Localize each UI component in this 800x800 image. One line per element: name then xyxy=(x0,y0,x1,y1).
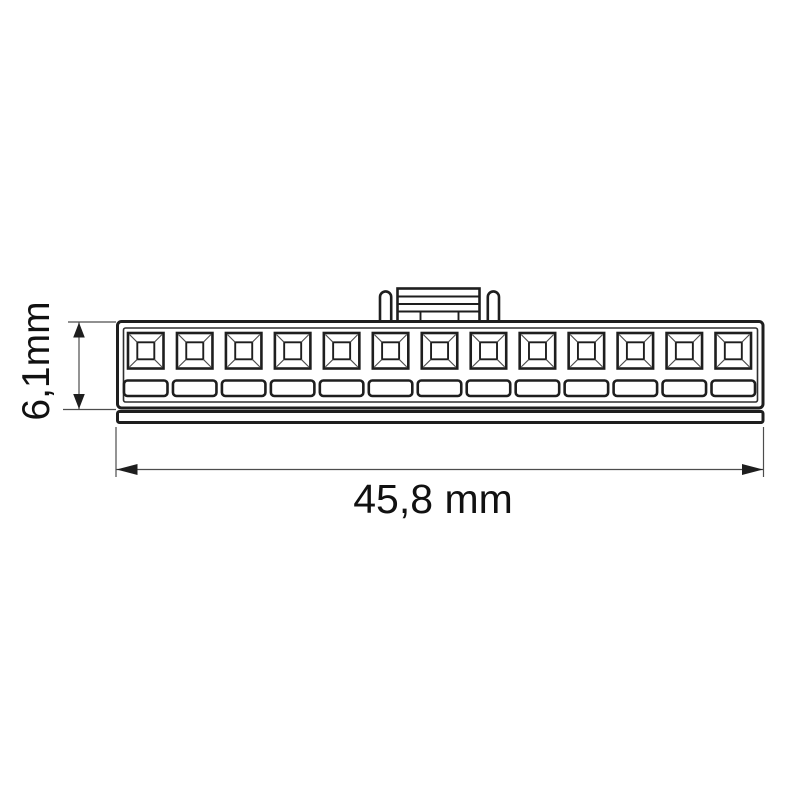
height-dimension: 6,1mm xyxy=(15,301,116,420)
cavity-bevel-line xyxy=(472,359,480,367)
pin-slot xyxy=(712,381,756,397)
width-dimension-label: 45,8 mm xyxy=(353,476,513,522)
cavity-inner-square xyxy=(235,342,252,359)
cavity-bevel-line xyxy=(521,359,529,367)
pin-slot xyxy=(173,381,217,397)
cavity-inner-square xyxy=(627,342,644,359)
pin-cavity-11 xyxy=(614,333,658,396)
cavity-inner-square xyxy=(431,342,448,359)
cavity-bevel-line xyxy=(154,335,162,343)
connector-technical-drawing: 6,1mm 45,8 mm xyxy=(0,0,800,800)
cavity-inner-square xyxy=(382,342,399,359)
cavity-inner-square xyxy=(578,342,595,359)
pin-slot xyxy=(516,381,560,397)
cavity-bevel-line xyxy=(276,359,284,367)
latch-block xyxy=(398,289,480,322)
cavity-bevel-line xyxy=(374,335,382,343)
arrow-left-icon xyxy=(117,464,138,475)
cavity-bevel-line xyxy=(644,359,652,367)
cavity-bevel-line xyxy=(619,359,627,367)
cavity-bevel-line xyxy=(252,335,260,343)
locking-latch xyxy=(380,289,499,323)
cavity-bevel-line xyxy=(301,335,309,343)
cavity-bevel-line xyxy=(179,359,187,367)
cavity-bevel-line xyxy=(350,359,358,367)
pin-slot xyxy=(565,381,609,397)
cavity-inner-square xyxy=(333,342,350,359)
cavity-inner-square xyxy=(480,342,497,359)
cavity-inner-square xyxy=(529,342,546,359)
arrow-right-icon xyxy=(742,464,763,475)
pin-slot xyxy=(271,381,315,397)
cavity-bevel-line xyxy=(350,335,358,343)
cavity-bevel-line xyxy=(717,335,725,343)
cavity-inner-square xyxy=(725,342,742,359)
cavity-bevel-line xyxy=(252,359,260,367)
cavity-bevel-line xyxy=(472,335,480,343)
cavity-bevel-line xyxy=(374,359,382,367)
pin-cavity-5 xyxy=(320,333,364,396)
pin-slot xyxy=(663,381,707,397)
cavity-bevel-line xyxy=(717,359,725,367)
body-base-rail xyxy=(118,412,764,423)
cavity-bevel-line xyxy=(154,359,162,367)
cavity-bevel-line xyxy=(595,335,603,343)
cavity-bevel-line xyxy=(521,335,529,343)
cavity-inner-square xyxy=(137,342,154,359)
cavity-bevel-line xyxy=(203,359,211,367)
cavity-bevel-line xyxy=(668,359,676,367)
cavity-bevel-line xyxy=(668,335,676,343)
cavity-bevel-line xyxy=(644,335,652,343)
cavity-bevel-line xyxy=(619,335,627,343)
cavity-bevel-line xyxy=(693,335,701,343)
pin-slot xyxy=(467,381,511,397)
cavity-bevel-line xyxy=(228,359,236,367)
pin-cavity-12 xyxy=(663,333,707,396)
pin-slot xyxy=(418,381,462,397)
cavity-bevel-line xyxy=(399,359,407,367)
cavity-bevel-line xyxy=(130,359,138,367)
cavity-bevel-line xyxy=(742,335,750,343)
pin-slot xyxy=(369,381,413,397)
arrow-down-icon xyxy=(73,394,85,409)
cavity-bevel-line xyxy=(399,335,407,343)
pin-cavity-row xyxy=(124,333,755,396)
cavity-bevel-line xyxy=(179,335,187,343)
cavity-inner-square xyxy=(676,342,693,359)
cavity-bevel-line xyxy=(546,335,554,343)
pin-cavity-13 xyxy=(712,333,756,396)
pin-slot xyxy=(320,381,364,397)
arrow-up-icon xyxy=(73,323,85,338)
cavity-bevel-line xyxy=(325,335,333,343)
cavity-bevel-line xyxy=(497,359,505,367)
height-dimension-label: 6,1mm xyxy=(15,301,58,420)
pin-cavity-1 xyxy=(124,333,168,396)
cavity-bevel-line xyxy=(742,359,750,367)
cavity-bevel-line xyxy=(423,359,431,367)
cavity-bevel-line xyxy=(570,335,578,343)
pin-slot xyxy=(124,381,168,397)
cavity-bevel-line xyxy=(228,335,236,343)
pin-cavity-7 xyxy=(418,333,462,396)
cavity-bevel-line xyxy=(546,359,554,367)
pin-slot xyxy=(222,381,265,397)
pin-cavity-6 xyxy=(369,333,413,396)
cavity-bevel-line xyxy=(423,335,431,343)
cavity-bevel-line xyxy=(130,335,138,343)
pin-cavity-3 xyxy=(222,333,265,396)
pin-cavity-8 xyxy=(467,333,511,396)
pin-cavity-10 xyxy=(565,333,609,396)
cavity-bevel-line xyxy=(448,335,456,343)
cavity-bevel-line xyxy=(301,359,309,367)
drawing-canvas: 6,1mm 45,8 mm xyxy=(0,0,800,800)
cavity-inner-square xyxy=(284,342,301,359)
cavity-bevel-line xyxy=(570,359,578,367)
pin-slot xyxy=(614,381,658,397)
cavity-bevel-line xyxy=(497,335,505,343)
width-dimension: 45,8 mm xyxy=(116,427,764,522)
cavity-bevel-line xyxy=(693,359,701,367)
latch-right-post xyxy=(488,291,499,322)
pin-cavity-2 xyxy=(173,333,217,396)
latch-left-post xyxy=(380,291,391,322)
cavity-inner-square xyxy=(186,342,203,359)
cavity-bevel-line xyxy=(203,335,211,343)
pin-cavity-9 xyxy=(516,333,560,396)
cavity-bevel-line xyxy=(276,335,284,343)
cavity-bevel-line xyxy=(448,359,456,367)
pin-cavity-4 xyxy=(271,333,315,396)
cavity-bevel-line xyxy=(595,359,603,367)
cavity-bevel-line xyxy=(325,359,333,367)
